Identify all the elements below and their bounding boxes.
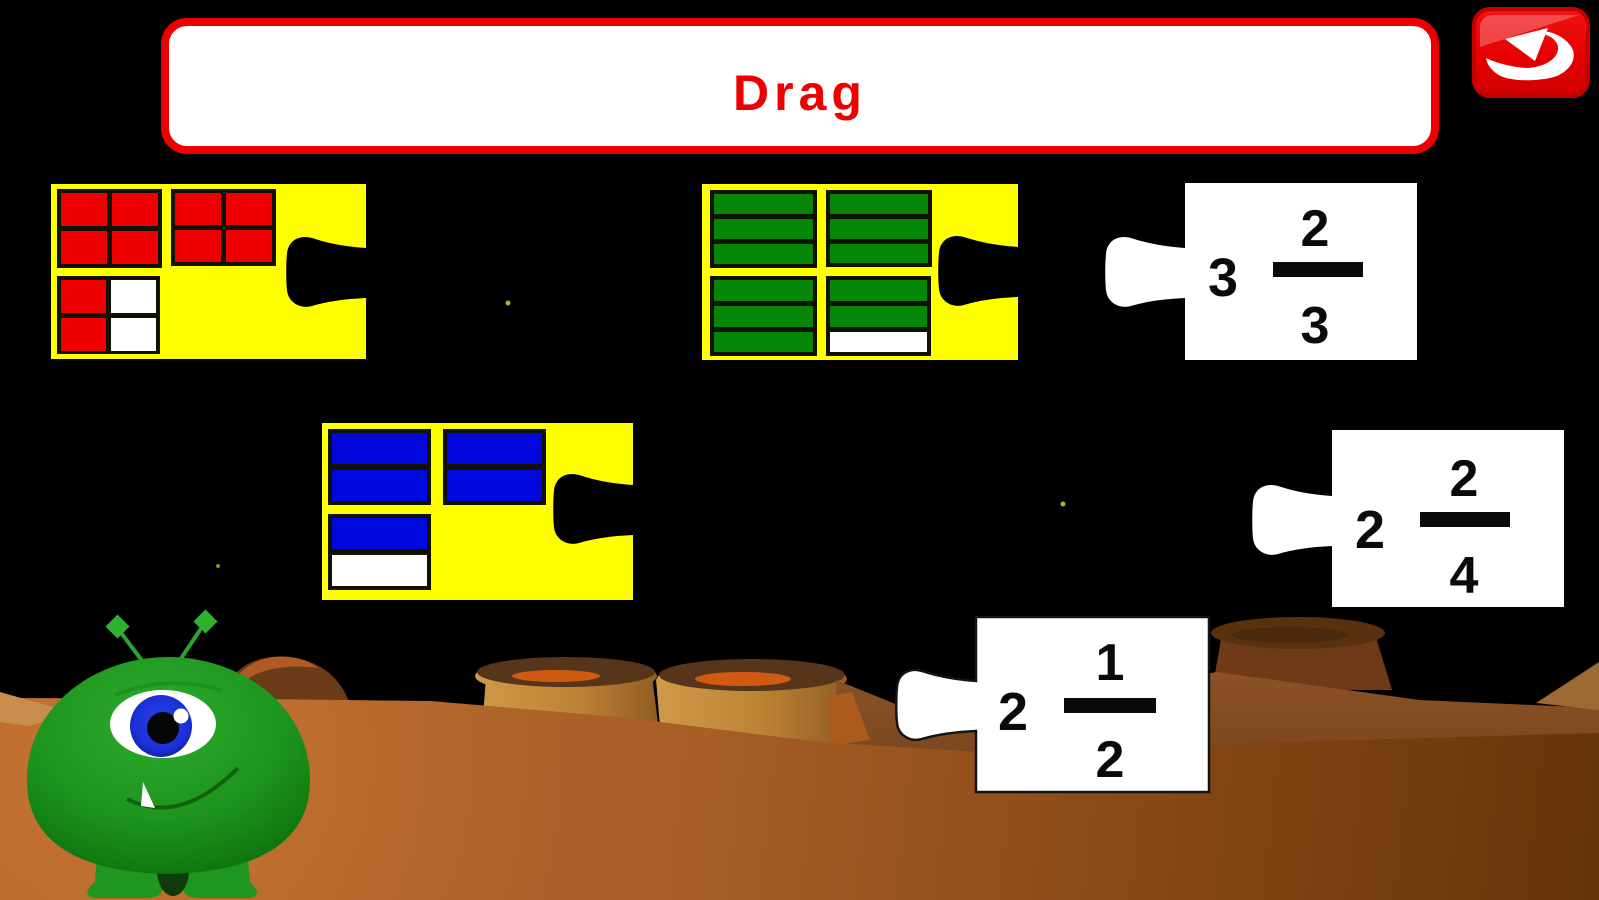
svg-text:1: 1 <box>1096 634 1125 692</box>
svg-text:4: 4 <box>1450 547 1479 605</box>
svg-text:3: 3 <box>1301 297 1330 355</box>
svg-text:2: 2 <box>1096 731 1125 789</box>
svg-text:3: 3 <box>1208 248 1238 308</box>
svg-text:Drag: Drag <box>733 65 867 121</box>
svg-text:2: 2 <box>1450 450 1479 508</box>
svg-text:2: 2 <box>998 682 1028 742</box>
svg-text:2: 2 <box>1355 500 1385 560</box>
svg-text:2: 2 <box>1301 200 1330 258</box>
